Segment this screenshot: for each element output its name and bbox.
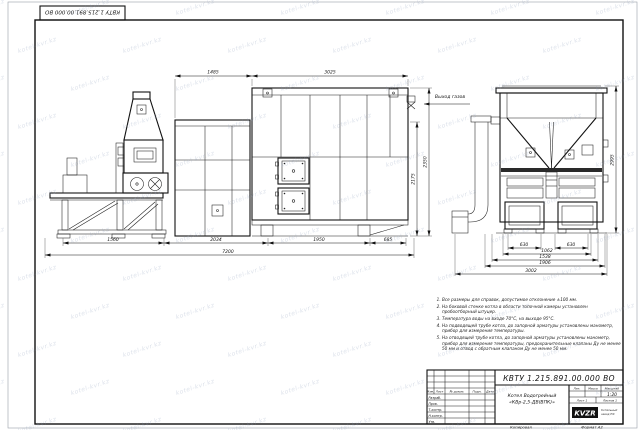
svg-text:2350: 2350: [423, 156, 429, 168]
note-item: Температура воды на входе 70°С, на выход…: [442, 316, 621, 322]
note-item: На отводящей трубе котла, до запорной ар…: [442, 335, 621, 352]
svg-text:Н.контр.: Н.контр.: [429, 414, 443, 418]
note-item: На боковой стенке котла в области топочн…: [442, 304, 621, 315]
svg-text:3002: 3002: [525, 268, 537, 274]
svg-text:KVZR: KVZR: [574, 409, 595, 417]
product-name-line2: «КВр-2,5-ДВ(ВПК)»: [509, 400, 555, 406]
feeder-housing: [175, 120, 250, 236]
notes-block: Все размеры для справок, допустимое откл…: [433, 297, 621, 353]
copied-label: Копировал: [510, 425, 532, 430]
fuel-hopper: [118, 92, 168, 193]
side-view-dimensions: 630 630 1062 1538 1906 3002 2995: [455, 86, 619, 276]
company-logo: KVZR: [572, 407, 598, 418]
svg-text:2175: 2175: [411, 173, 417, 185]
svg-text:1538: 1538: [539, 254, 551, 260]
svg-text:630: 630: [567, 242, 576, 248]
note-item: Все размеры для справок, допустимое откл…: [442, 297, 621, 303]
note-item: На подводящей трубе котла, до запорной а…: [442, 323, 621, 334]
svg-text:Масса: Масса: [588, 387, 598, 391]
scale-value: 1:20: [607, 392, 617, 398]
svg-text:Дата: Дата: [485, 390, 494, 394]
gas-outlet-label: Выход газов: [435, 94, 465, 100]
svg-text:2995: 2995: [610, 154, 616, 166]
svg-text:Утв.: Утв.: [429, 420, 436, 424]
drawing-sheet: КВТУ 1.215.891.00.000 ВО: [0, 0, 644, 430]
svg-text:КВТУ 1.215.891.00.000 ВО: КВТУ 1.215.891.00.000 ВО: [44, 9, 120, 15]
front-view: [50, 88, 415, 238]
feeder-table: [50, 143, 166, 238]
gas-outlet-callout: Выход газов: [424, 94, 470, 104]
svg-text:Подп.: Подп.: [472, 390, 481, 394]
svg-text:7200: 7200: [222, 249, 234, 255]
svg-text:завод РФ: завод РФ: [601, 412, 615, 416]
svg-text:Лист: Лист: [435, 390, 444, 394]
svg-text:1906: 1906: [539, 260, 551, 266]
format-label: Формат А2: [581, 425, 603, 430]
doc-number-stamp: КВТУ 1.215.891.00.000 ВО: [40, 6, 125, 20]
notes-list: Все размеры для справок, допустимое откл…: [433, 297, 621, 352]
svg-text:3025: 3025: [324, 70, 336, 76]
svg-text:1485: 1485: [207, 70, 219, 76]
svg-text:1950: 1950: [313, 237, 325, 243]
boiler-body: [252, 88, 415, 236]
boiler-door-lower: [276, 188, 310, 214]
fan-duct-assembly: [452, 116, 500, 233]
svg-text:Масштаб: Масштаб: [605, 387, 619, 391]
svg-text:Т.контр.: Т.контр.: [429, 408, 443, 412]
svg-text:1560: 1560: [107, 237, 119, 243]
doc-number: КВТУ 1.215.891.00.000 ВО: [503, 374, 615, 383]
svg-text:Пров.: Пров.: [429, 402, 438, 406]
svg-text:Разраб.: Разраб.: [429, 396, 442, 400]
product-name-line1: Котел Водогрейный: [508, 393, 557, 399]
svg-text:Изм.: Изм.: [427, 390, 434, 394]
boiler-door-upper: [276, 158, 310, 184]
sheet-edge: [8, 2, 637, 428]
svg-text:630: 630: [520, 242, 529, 248]
svg-text:Лист 1: Лист 1: [576, 399, 588, 403]
svg-text:Лит.: Лит.: [573, 387, 581, 391]
side-view: [452, 86, 608, 233]
svg-text:Листов 1: Листов 1: [602, 399, 617, 403]
svg-text:№ докум.: № докум.: [449, 390, 465, 394]
svg-text:1062: 1062: [541, 248, 553, 254]
title-block: Изм. Лист № докум. Подп. Дата Разраб. Пр…: [427, 370, 623, 424]
svg-text:685: 685: [384, 237, 393, 243]
technical-drawing-canvas: КВТУ 1.215.891.00.000 ВО: [0, 0, 644, 430]
svg-text:2034: 2034: [210, 237, 222, 243]
boiler-end-view: [496, 86, 608, 233]
